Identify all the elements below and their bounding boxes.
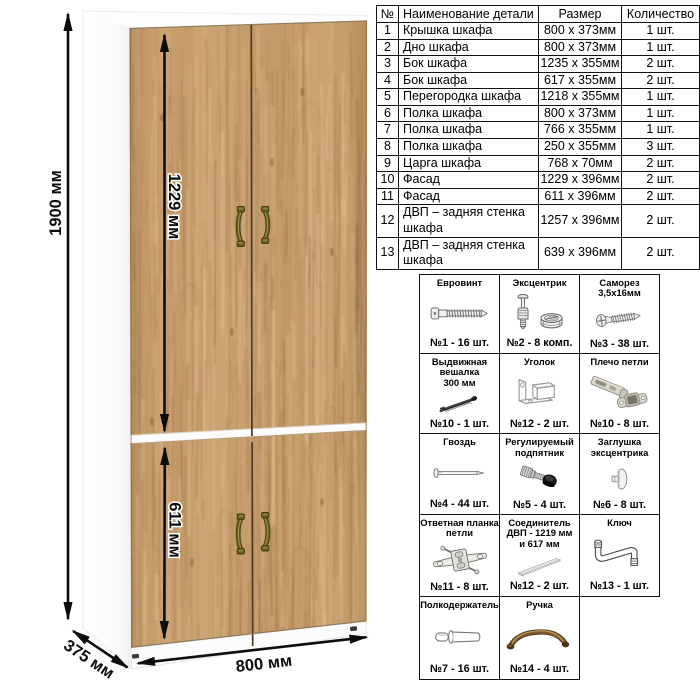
svg-text:611 мм: 611 мм [166,502,184,558]
svg-text:800 мм: 800 мм [235,652,293,676]
svg-text:1229 мм: 1229 мм [165,174,183,240]
svg-text:1900 мм: 1900 мм [47,170,65,236]
